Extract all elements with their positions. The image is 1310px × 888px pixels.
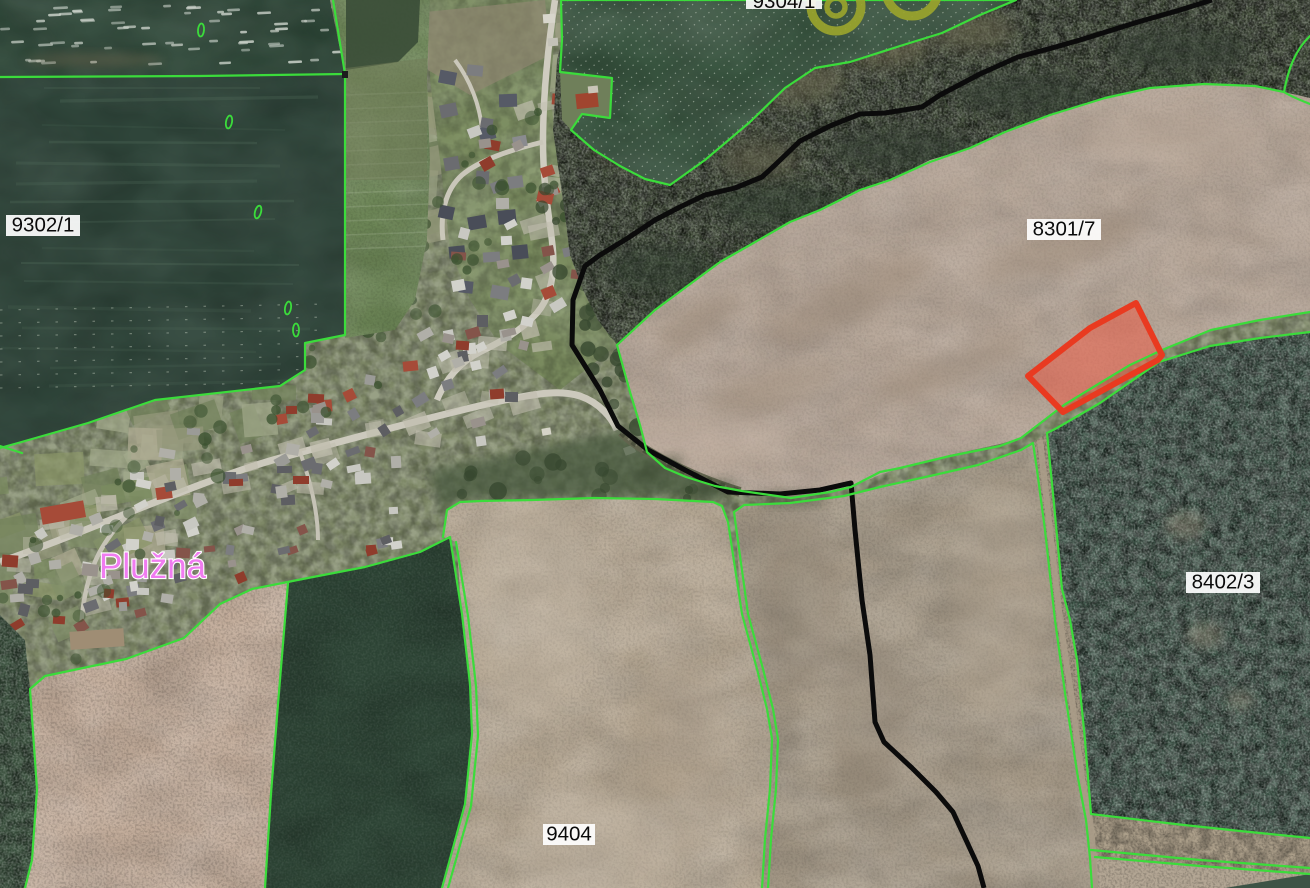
- svg-text:Plužná: Plužná: [99, 547, 207, 586]
- svg-text:8402/3: 8402/3: [1192, 571, 1255, 594]
- svg-text:9302/1: 9302/1: [12, 214, 75, 237]
- svg-text:9404: 9404: [546, 823, 592, 846]
- svg-text:8301/7: 8301/7: [1033, 218, 1096, 241]
- svg-text:9304/1: 9304/1: [753, 0, 816, 13]
